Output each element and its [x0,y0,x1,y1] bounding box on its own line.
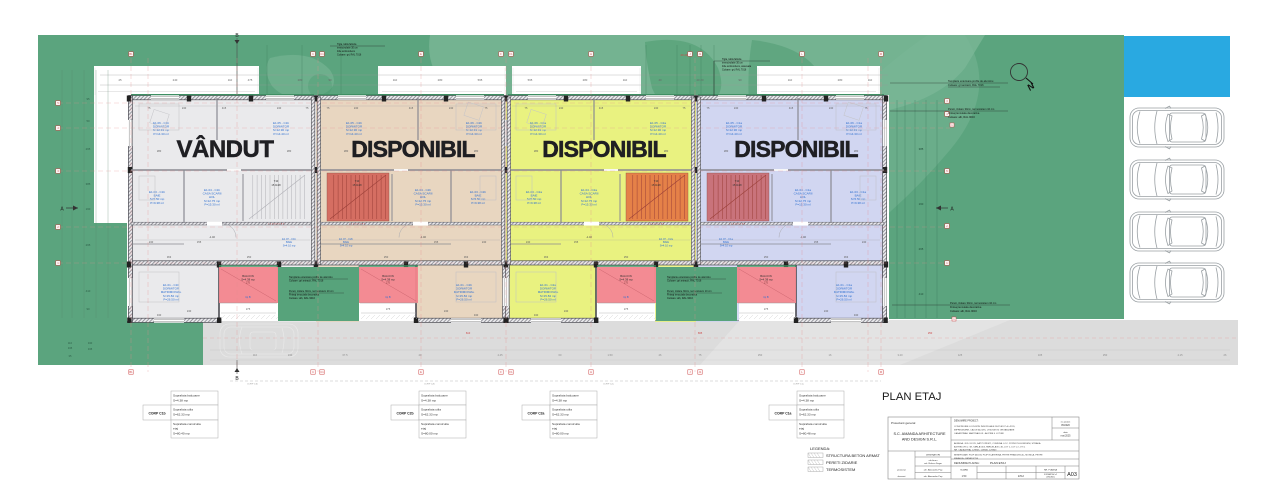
svg-text:110: 110 [623,78,628,82]
svg-text:etaj: etaj [421,427,426,431]
svg-text:Culoare: alb, RAL 9016: Culoare: alb, RAL 9016 [667,297,694,300]
svg-text:NR. CADASTRAL 129845, 129846,: NR. CADASTRAL 129845, 129846, 129843 [954,449,997,452]
svg-text:S=80.00 mp: S=80.00 mp [552,432,569,436]
svg-text:25: 25 [118,78,122,82]
svg-text:280: 280 [724,149,729,153]
svg-text:240: 240 [187,309,192,313]
svg-text:240: 240 [734,106,739,110]
svg-text:363: 363 [464,255,469,259]
svg-text:BALCONS=4.38 mp: BALCONS=4.38 mp [619,274,633,281]
svg-text:1 2 3 4 5 6 7 8 9: 1 2 3 4 5 6 7 8 9 [268,224,285,226]
svg-text:E1.01 - C2bDORMITORMATRIMONIAL: E1.01 - C2bDORMITORMATRIMONIALS=15.82 mp… [454,283,475,301]
svg-text:240: 240 [862,240,867,244]
svg-text:CORP C2b: CORP C2b [396,412,413,416]
svg-text:E1.03 - C2aBAIES=5.50 mpP=9.38: E1.03 - C2aBAIES=5.50 mpP=9.38 ml [526,190,542,205]
svg-text:T10: T10 [355,179,360,183]
svg-text:250: 250 [764,255,769,259]
svg-text:CORP C2b: CORP C2b [424,384,436,386]
svg-text:240: 240 [449,106,454,110]
svg-text:Culoare: gri, RAL 7016: Culoare: gri, RAL 7016 [722,69,747,72]
svg-text:40: 40 [658,78,662,82]
svg-text:BALCONS=4.38 mp: BALCONS=4.38 mp [241,274,255,281]
svg-text:250: 250 [624,255,629,259]
svg-text:E1.05 - C1aDORMITORS=12.90 mpP: E1.05 - C1aDORMITORS=12.90 mpP=14.40 ml [726,121,743,136]
svg-text:MIHAELA - BENEDICTA: MIHAELA - BENEDICTA [954,457,978,460]
svg-text:tip B: tip B [245,295,250,299]
svg-text:15.0x28: 15.0x28 [732,183,742,187]
svg-text:S=62.33 mp: S=62.33 mp [173,413,190,417]
svg-text:Suprafata balcoane: Suprafata balcoane [421,394,448,398]
svg-text:ASTRELOR nr. 5E, TARLA 55/4, P: ASTRELOR nr. 5E, TARLA 55/4, PARCELA NC … [954,445,1026,448]
svg-text:4.15: 4.15 [1177,353,1183,357]
svg-text:M: M [880,370,882,374]
svg-text:565: 565 [528,78,533,82]
svg-text:90: 90 [328,78,332,82]
svg-text:363: 363 [167,255,172,259]
svg-text:275: 275 [246,307,251,311]
svg-text:CASANTINAU SANTINAULUI - ALIPI: CASANTINAU SANTINAULUI - ALIPIRE 4 LOTUR… [954,432,1004,435]
svg-text:E1.05 - C1bDORMITORS=12.90 mpP: E1.05 - C1bDORMITORS=12.90 mpP=14.40 ml [273,121,290,136]
svg-text:Suprafata utila: Suprafata utila [421,408,441,412]
svg-text:Suprafata construita: Suprafata construita [173,422,201,426]
svg-text:C1: C1 [320,370,324,374]
svg-text:CORP C1b: CORP C1b [148,412,165,416]
svg-text:20 20: 20 20 [681,53,688,57]
svg-text:E1.03 - C1bBAIES=5.50 mpP=9.38: E1.03 - C1bBAIES=5.50 mpP=9.38 ml [149,190,165,205]
svg-text:280: 280 [287,149,292,153]
svg-text:tip B: tip B [763,295,768,299]
svg-text:PLAN ETAJ: PLAN ETAJ [882,391,941,403]
svg-text:desenat: desenat [898,475,906,478]
svg-text:Culoare: alb, RAL 9016: Culoare: alb, RAL 9016 [950,309,977,313]
svg-text:E1.01 - C1aDORMITORMATRIMONIAL: E1.01 - C1aDORMITORMATRIMONIALS=15.82 mp… [834,283,855,301]
svg-text:90: 90 [738,78,742,82]
svg-text:etaj: etaj [552,427,557,431]
svg-text:S=4.38 mp: S=4.38 mp [799,399,814,403]
svg-text:S=80.48 mp: S=80.48 mp [799,432,816,436]
svg-text:155: 155 [434,240,439,244]
svg-text:340: 340 [157,313,162,317]
svg-text:105: 105 [1038,353,1043,357]
svg-text:tip B: tip B [623,295,628,299]
svg-text:Culoare: gri antracit, RAL 701: Culoare: gri antracit, RAL 7016 [289,280,324,283]
svg-text:CORP C1a: CORP C1a [775,412,792,416]
svg-text:S=62.33 mp: S=62.33 mp [799,413,816,417]
svg-text:AND DESIGN S.R.L.: AND DESIGN S.R.L. [902,438,937,442]
svg-text:265: 265 [919,247,924,251]
svg-text:E1.06 - C2bDORMITORS=12.91 mpP: E1.06 - C2bDORMITORS=12.91 mpP=14.30 ml [466,121,483,136]
svg-text:125: 125 [958,353,963,357]
svg-text:T10: T10 [274,179,279,183]
svg-text:Finisaj tencuiala decorativa: Finisaj tencuiala decorativa [950,305,982,309]
svg-text:etaj: etaj [799,427,804,431]
svg-text:DENUMIRE PROIECT:: DENUMIRE PROIECT: [954,420,979,423]
svg-text:proiectat: proiectat [897,469,906,472]
svg-text:C: C [312,52,314,56]
svg-text:385: 385 [919,147,924,151]
svg-text:275: 275 [764,307,769,311]
svg-text:1.50: 1.50 [607,353,613,357]
svg-text:695: 695 [698,331,703,335]
svg-text:arh.birou: arh.birou [929,459,938,462]
svg-text:Suprafata construita: Suprafata construita [552,422,580,426]
svg-text:4.45: 4.45 [497,353,503,357]
svg-text:Suprafata construita: Suprafata construita [799,422,827,426]
svg-text:363: 363 [544,255,549,259]
svg-text:240: 240 [444,309,449,313]
svg-text:E1.06 - C1bDORMITORS=12.91 mpP: E1.06 - C1bDORMITORS=12.91 mpP=14.30 ml [153,121,170,136]
svg-text:VÂNDUT: VÂNDUT [177,135,275,163]
svg-text:S=4.38 mp: S=4.38 mp [173,399,188,403]
svg-text:265: 265 [86,147,91,151]
svg-text:CORP C1b: CORP C1b [247,384,259,386]
svg-text:110: 110 [68,341,73,345]
svg-text:S=4.38 mp: S=4.38 mp [552,399,567,403]
svg-text:Suprafata utila: Suprafata utila [173,408,193,412]
svg-text:240: 240 [277,106,282,110]
svg-text:475: 475 [248,78,253,82]
svg-text:NR. PLANSA: NR. PLANSA [1044,469,1058,472]
svg-text:Suprafata balcoane: Suprafata balcoane [799,394,826,398]
svg-text:DISPONIBIL: DISPONIBIL [734,136,858,162]
svg-text:Suprafata construita: Suprafata construita [421,422,449,426]
svg-text:275: 275 [764,282,769,285]
svg-text:IMPREJMUIRE, CAI DE ACCES, UTI: IMPREJMUIRE, CAI DE ACCES, UTILITATI SI … [954,429,1015,432]
svg-text:CORP C1a: CORP C1a [793,384,805,386]
svg-text:240: 240 [526,240,531,244]
svg-text:E1.05 - C2bDORMITORS=12.90 mpP: E1.05 - C2bDORMITORS=12.90 mpP=14.40 ml [346,121,363,136]
svg-text:240: 240 [654,106,659,110]
svg-text:H: H [590,370,592,374]
svg-text:250: 250 [247,255,252,259]
svg-text:Pereti, izolare 30cm, termosis: Pereti, izolare 30cm, termosistem 10 cm [948,107,994,111]
svg-text:340: 340 [474,313,479,317]
svg-text:A03: A03 [1067,472,1077,478]
svg-text:DISPONIBIL: DISPONIBIL [542,136,666,162]
svg-text:E1.06 - C1aDORMITORS=12.91 mpP: E1.06 - C1aDORMITORS=12.91 mpP=14.30 ml [846,121,863,136]
svg-text:CONSTRUIRE LOCUINTE INDIVIDUAL: CONSTRUIRE LOCUINTE INDIVIDUALE DUPLEX P… [954,425,1016,428]
svg-text:1:50: 1:50 [962,475,967,478]
svg-text:-1.40: -1.40 [800,235,806,239]
svg-text:E1.03 - C2bBAIES=5.50 mpP=9.38: E1.03 - C2bBAIES=5.50 mpP=9.38 ml [470,190,486,205]
svg-text:PERETI ZIDARIE: PERETI ZIDARIE [826,460,858,465]
svg-text:160: 160 [919,202,924,206]
svg-text:110: 110 [228,78,233,82]
svg-text:410: 410 [919,292,924,296]
svg-text:Culoare: gri antracit, RAL 701: Culoare: gri antracit, RAL 7016 [667,280,702,283]
svg-text:H: H [590,52,592,56]
svg-text:arh. Raluca Dogar: arh. Raluca Dogar [924,462,942,465]
svg-text:E1.01 - C1bDORMITORMATRIMONIAL: E1.01 - C1bDORMITORMATRIMONIALS=15.82 mp… [161,283,182,301]
svg-text:M: M [880,52,882,56]
svg-text:240: 240 [824,309,829,313]
svg-text:340: 340 [854,313,859,317]
svg-text:E1.03 - C1aBAIES=5.50 mpP=9.38: E1.03 - C1aBAIES=5.50 mpP=9.38 ml [850,190,866,205]
svg-text:15.0x28: 15.0x28 [651,183,661,187]
svg-text:1 2 3 4 5 6 7 8 9: 1 2 3 4 5 6 7 8 9 [729,224,746,226]
svg-text:240: 240 [173,78,178,82]
svg-text:95: 95 [86,97,90,101]
svg-text:340: 340 [534,313,539,317]
svg-text:240: 240 [288,353,293,357]
svg-text:05/2020: 05/2020 [1061,424,1070,427]
svg-text:275: 275 [386,282,391,285]
svg-text:Pereti, izolare 30cm, termosis: Pereti, izolare 30cm, termosistem 10 cm [950,301,996,305]
svg-text:110: 110 [393,78,398,82]
svg-text:S.C. AMANDA ARHITECTURE: S.C. AMANDA ARHITECTURE [893,432,946,436]
svg-text:250: 250 [384,255,389,259]
svg-text:DISPONIBIL: DISPONIBIL [351,136,475,162]
svg-text:STRUCTURA BETON ARMAT: STRUCTURA BETON ARMAT [826,453,880,458]
svg-text:tip B: tip B [385,295,390,299]
svg-text:E1.01 - C2aDORMITORMATRIMONIAL: E1.01 - C2aDORMITORMATRIMONIALS=15.82 mp… [538,283,559,301]
svg-text:280: 280 [157,149,162,153]
svg-text:363: 363 [844,255,849,259]
svg-text:S=4.38 mp: S=4.38 mp [421,399,436,403]
svg-text:S=80.00 mp: S=80.00 mp [421,432,438,436]
svg-text:415: 415 [409,106,414,110]
svg-text:S=62.33 mp: S=62.33 mp [552,413,569,417]
svg-text:ADRESA: JUD. ILFOV, SAT POPEST: ADRESA: JUD. ILFOV, SAT POPESTI, COMUNA.… [954,442,1041,445]
svg-text:280: 280 [344,149,349,153]
svg-text:250: 250 [1103,353,1108,357]
svg-text:T10: T10 [654,179,659,183]
svg-text:Culoare: alb, RAL 9016: Culoare: alb, RAL 9016 [948,115,975,119]
svg-text:415: 415 [599,106,604,110]
svg-text:155: 155 [814,240,819,244]
svg-text:CORP C2a: CORP C2a [528,412,545,416]
svg-text:275: 275 [386,307,391,311]
svg-text:610: 610 [466,331,471,335]
svg-text:280: 280 [838,78,843,82]
svg-text:S=62.33 mp: S=62.33 mp [421,413,438,417]
svg-text:(594x841): (594x841) [1046,477,1055,479]
svg-text:240: 240 [149,240,154,244]
svg-text:275: 275 [624,307,629,311]
svg-text:240: 240 [354,106,359,110]
svg-text:Proiectant general: Proiectant general [891,421,916,425]
svg-text:1 2 3 4 5 6 7 8 9: 1 2 3 4 5 6 7 8 9 [648,224,665,226]
svg-text:90: 90 [86,307,90,311]
svg-text:-1.40: -1.40 [586,235,592,239]
svg-text:E1.05 - C2aDORMITORS=12.90 mpP: E1.05 - C2aDORMITORS=12.90 mpP=14.40 ml [650,121,667,136]
svg-text:250: 250 [758,353,763,357]
svg-text:20 20: 20 20 [697,78,704,82]
svg-text:240: 240 [829,106,834,110]
svg-text:BALCONS=4.38 mp: BALCONS=4.38 mp [759,274,773,281]
svg-text:Suprafata utila: Suprafata utila [552,408,572,412]
svg-text:110: 110 [868,78,873,82]
svg-text:Suprafata balcoane: Suprafata balcoane [173,394,200,398]
svg-text:345: 345 [88,347,93,351]
svg-text:275: 275 [624,282,629,285]
svg-text:240: 240 [564,309,569,313]
svg-text:LEGENDA:: LEGENDA: [810,446,830,451]
svg-text:275: 275 [246,282,251,285]
svg-text:50: 50 [86,119,90,123]
svg-text:SCARA: SCARA [960,469,968,472]
svg-text:240: 240 [559,106,564,110]
svg-text:280: 280 [583,78,588,82]
svg-text:C1: C1 [320,52,324,56]
svg-text:160: 160 [86,207,91,211]
svg-text:280: 280 [438,78,443,82]
svg-text:340: 340 [88,341,93,345]
svg-text:385: 385 [86,182,91,186]
svg-text:67.5: 67.5 [342,353,348,357]
svg-text:C: C [312,370,314,374]
svg-text:110: 110 [253,353,258,357]
svg-text:TERMOSISTEM: TERMOSISTEM [826,467,855,472]
svg-text:15.0x28: 15.0x28 [352,183,362,187]
svg-text:arh. Alexandru Pop: arh. Alexandru Pop [924,475,943,478]
svg-text:250: 250 [928,331,933,335]
svg-text:ETAJ: ETAJ [1018,475,1024,478]
svg-text:1 2 3 4 5 6 7 8 9: 1 2 3 4 5 6 7 8 9 [349,224,366,226]
svg-text:265: 265 [86,243,91,247]
svg-text:345: 345 [68,346,73,350]
svg-text:155: 155 [197,240,202,244]
svg-text:S=80.40 mp: S=80.40 mp [173,432,190,436]
svg-text:Suprafata utila: Suprafata utila [799,408,819,412]
svg-text:415: 415 [789,106,794,110]
svg-text:240: 240 [482,240,487,244]
svg-text:15.0x28: 15.0x28 [271,183,281,187]
svg-text:Finisaj tencuiala decorativa: Finisaj tencuiala decorativa [948,111,980,115]
svg-text:-1.40: -1.40 [209,235,215,239]
svg-text:565: 565 [478,78,483,82]
svg-text:280: 280 [534,149,539,153]
svg-text:mai.2025: mai.2025 [1061,435,1072,438]
svg-text:E: E [420,52,422,56]
svg-text:DESENATORI: DESENATORI [926,454,940,457]
svg-text:T10: T10 [735,179,740,183]
svg-text:Tamplarie exterioara profile: Tamplarie exterioara profile de aluminiu [948,79,994,83]
svg-text:CORP C2a: CORP C2a [603,384,615,386]
svg-text:110: 110 [788,78,793,82]
svg-text:E: E [420,370,422,374]
svg-text:DENUMIRE PLANSA:: DENUMIRE PLANSA: [954,461,980,465]
svg-text:Culoare: gri antracit, RAL 701: Culoare: gri antracit, RAL 7016 [948,83,984,87]
svg-text:415: 415 [222,106,227,110]
svg-text:B1: B1 [129,52,133,56]
svg-text:E1.06 - C2aDORMITORS=12.91 mpP: E1.06 - C2aDORMITORS=12.91 mpP=14.30 ml [530,121,547,136]
svg-text:B1: B1 [129,370,133,374]
svg-text:Culoare: alb, RAL 9016: Culoare: alb, RAL 9016 [289,297,316,300]
svg-text:PLAN ETAJ: PLAN ETAJ [990,461,1006,465]
svg-text:Culoare: gri, RAL 7016: Culoare: gri, RAL 7016 [337,54,362,57]
svg-text:arh. Alexandru Pop: arh. Alexandru Pop [924,469,943,472]
svg-text:410: 410 [86,289,91,293]
svg-text:Suprafata balcoane: Suprafata balcoane [552,394,579,398]
svg-text:etaj: etaj [173,427,178,431]
svg-text:BALCONS=4.38 mp: BALCONS=4.38 mp [381,274,395,281]
svg-text:BENEFICIARI: FILIP IACOB, FILI: BENEFICIARI: FILIP IACOB, FILIP ECATERIN… [954,454,1043,457]
svg-text:155: 155 [574,240,579,244]
svg-text:3.20: 3.20 [897,353,903,357]
svg-text:240: 240 [182,106,187,110]
